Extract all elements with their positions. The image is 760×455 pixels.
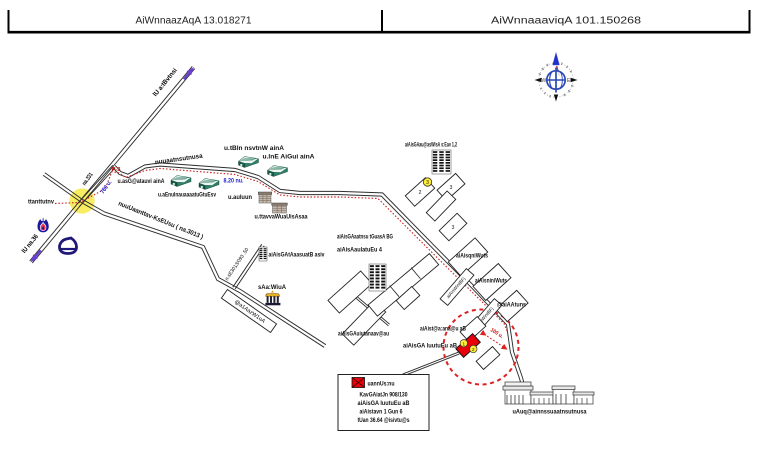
svg-text:2: 2 [472, 347, 475, 352]
svg-text:KavGAiatJn 908/130: KavGAiatJn 908/130 [360, 393, 409, 399]
svg-text:2: 2 [419, 190, 422, 196]
svg-text:uAuq@ainnssuaatnsutnusa: uAuq@ainnssuaatnsutnusa [513, 410, 588, 416]
svg-text:aiAisGAaatnsu tGuasA BG: aiAisGAaatnsu tGuasA BG [337, 235, 393, 241]
svg-text:AiWnnaazAqA 13.018271: AiWnnaazAqA 13.018271 [136, 16, 252, 27]
svg-text:aiAisAaulatuEu 4: aiAisAaulatuEu 4 [337, 248, 383, 254]
svg-text:AiWnnaaaviqA 101.150268: AiWnnaaaviqA 101.150268 [491, 16, 642, 27]
svg-text:aiAisniniWuts: aiAisniniWuts [475, 279, 508, 285]
svg-text:3: 3 [452, 225, 455, 231]
svg-text:aiAisqniWuts: aiAisqniWuts [456, 254, 489, 260]
svg-text:ttanttutnv: ttanttutnv [28, 200, 55, 206]
svg-text:sAa:WiuA: sAa:WiuA [258, 284, 286, 291]
svg-text:u.lnE AiGui ainA: u.lnE AiGui ainA [263, 154, 315, 161]
svg-text:8.20 nu.: 8.20 nu. [224, 179, 244, 185]
svg-text:aiAisGAau@asWisA s:Eav 1,2: aiAisGAau@asWisA s:Eav 1,2 [405, 143, 457, 149]
svg-text:aiAisGAtAaasuatB asiv: aiAisGAtAaasuatB asiv [269, 253, 326, 259]
svg-text:W: W [541, 78, 546, 84]
svg-text:aiAisGA luutuEu aB: aiAisGA luutuEu aB [358, 401, 411, 407]
svg-text:uannUs:nu: uannUs:nu [368, 382, 395, 388]
svg-text:aiAist@a:ana@u aB: aiAist@a:ana@u aB [420, 327, 467, 333]
svg-text:aiAistavn 1 Gun 6: aiAistavn 1 Gun 6 [360, 410, 404, 416]
svg-text:u.auluun: u.auluun [228, 194, 252, 201]
svg-text:tUan 36.64 @isivtu@s: tUan 36.64 @isivtu@s [358, 418, 411, 424]
svg-text:1: 1 [463, 341, 466, 346]
svg-text:u.aEnulnauaaaatuGtuEsv: u.aEnulnauaaaatuGtuEsv [158, 192, 216, 199]
svg-text:@aiAAtuns: @aiAAtuns [497, 303, 527, 309]
svg-text:aiAisGAuiutanaav@au: aiAisGAuiutanaav@au [338, 332, 389, 338]
svg-text:u.asG@atauvi ainA: u.asG@atauvi ainA [118, 178, 165, 185]
svg-text:3: 3 [426, 180, 429, 186]
svg-text:aiAisGA luutuEu aB: aiAisGA luutuEu aB [403, 344, 458, 350]
svg-text:F-3: F-3 [112, 167, 121, 173]
svg-text:3: 3 [450, 185, 453, 191]
svg-text:u.ttavvaWuaUisAsaa: u.ttavvaWuaUisAsaa [255, 214, 308, 221]
svg-text:u.tBln nsvtnW ainA: u.tBln nsvtnW ainA [224, 145, 284, 152]
